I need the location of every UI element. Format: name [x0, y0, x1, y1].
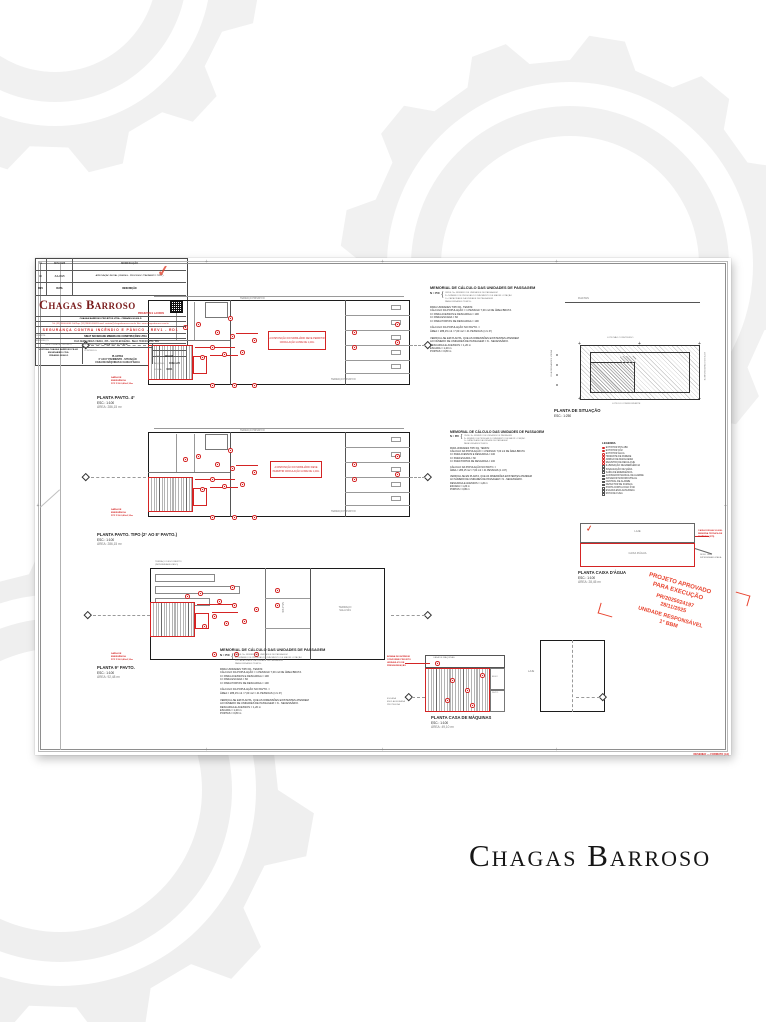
fire-symbol-icon	[470, 703, 475, 708]
fire-symbol-icon	[230, 334, 235, 339]
memorial-formula: N = P/C	[430, 292, 440, 296]
leader-line	[236, 333, 258, 334]
legend: LEGENDA EXTINTOR PQS ABCEXTINTOR CO2EXTI…	[602, 442, 664, 496]
wall-line	[345, 447, 410, 448]
legend-label: DETECTOR DE FUMAÇA	[606, 484, 633, 486]
wall-line	[345, 360, 410, 361]
terrace-label: TERRAÇO PRIVATIVO	[331, 510, 356, 513]
brand-wordmark: Chagas Barroso	[469, 838, 711, 874]
fire-symbol-icon	[232, 383, 237, 388]
content-cell: CLASSIFICAÇÃO: ÁREA: (2+4, 5+1 e A+B) CO…	[83, 344, 153, 364]
section-leader-line	[576, 697, 600, 698]
section-leader-line	[93, 615, 150, 616]
fire-symbol-icon	[196, 322, 201, 327]
rev-header: REV	[35, 283, 47, 296]
fixture	[391, 496, 401, 501]
frame-note: DESENHO — FORMATO (A1)	[591, 753, 729, 756]
wall-line	[345, 373, 410, 374]
section-marker-icon	[424, 611, 432, 619]
content-value: PLANTAS 4° AO 8° PAVIMENTO - SITUAÇÃO CA…	[83, 355, 152, 364]
terrace-label: TERRAÇO PRIVATIVO	[240, 429, 265, 432]
fire-symbol-icon	[183, 457, 188, 462]
rt-label: RESPONSÁVEL TÉCNICO	[35, 344, 82, 348]
wall-line	[148, 472, 230, 473]
section-leader-line	[410, 345, 425, 346]
rev-no: 00	[35, 271, 47, 284]
tank-annotation-red: CAIXA D'ÁGUA 10.000L RESERVA TÉCNICA DE …	[698, 530, 738, 539]
lot-label: LOTE DO CONFRONTANTE	[612, 403, 640, 406]
rev-header: DESCRIÇÃO	[73, 283, 186, 296]
legend-label: SAÍDA DE EMERGÊNCIA	[606, 472, 633, 474]
check-mark-icon: ✓	[156, 261, 171, 281]
leader-line	[195, 347, 235, 348]
parapet-line	[154, 428, 404, 429]
sheet-value: 01/01	[166, 368, 172, 371]
wall-line	[230, 300, 231, 385]
logo-tagline: PROJETOS E LAUDOS	[138, 312, 164, 315]
fire-symbol-icon	[198, 591, 203, 596]
memorial-body: PARA UNIDADES TIPO D1, TEMOS: CÁLCULO DA…	[430, 306, 542, 354]
street-label: RUA PAIS	[578, 297, 589, 300]
street-label-left: RUA FERNANDES VIEIRA	[551, 350, 554, 376]
fire-symbol-icon	[352, 462, 357, 467]
fire-symbol-icon	[352, 330, 357, 335]
legend-label: ROTA DE FUGA	[606, 493, 623, 495]
fold-mark	[40, 489, 60, 507]
building-dark-step	[620, 356, 636, 363]
memorial-where: ONDE: N= NÚMERO DE UNIDADES DE PASSAGEM …	[445, 292, 512, 303]
content-label: CONTEÚDO:	[84, 350, 97, 353]
emergency-stair	[148, 477, 193, 512]
terrace-label: TERRAÇO PRIVATIVO	[240, 297, 265, 300]
fire-symbol-icon	[395, 454, 400, 459]
wall-line	[230, 432, 231, 517]
fire-symbol-icon	[252, 338, 257, 343]
legend-symbol-icon	[602, 493, 605, 496]
memorial-where: ONDE: N= NÚMERO DE UNIDADES DE PASSAGEM …	[464, 435, 525, 445]
fire-symbol-icon	[228, 316, 233, 321]
fire-symbol-icon	[275, 603, 280, 608]
plan4-area: ÁREA: 286,15 m²	[97, 405, 122, 409]
street-line	[565, 302, 700, 303]
fire-symbol-icon	[210, 477, 215, 482]
fire-symbol-icon	[395, 472, 400, 477]
memorial-2: MEMORIAL DE CÁLCULO DAS UNIDADES DE PASS…	[450, 430, 545, 491]
fixture	[391, 350, 401, 355]
laje-dashed-line	[572, 640, 573, 712]
memorial-title: MEMORIAL DE CÁLCULO DAS UNIDADES DE PASS…	[220, 648, 338, 653]
fire-symbol-icon	[230, 466, 235, 471]
leader-line	[195, 479, 235, 480]
memorial-where: ONDE: N= NÚMERO DE UNIDADES DE PASSAGEM …	[235, 654, 302, 665]
sheet-label: FOLHA:	[154, 369, 162, 371]
lot-label: LOTE NÃO CONSTRUÍDO	[607, 337, 633, 340]
memorial-title: MEMORIAL DE CÁLCULO DAS UNIDADES DE PASS…	[430, 286, 542, 291]
mobiliario-notice-box: A DISPOSIÇÃO DO MOBILIÁRIO DEVE PERMITIR…	[268, 331, 326, 350]
fire-symbol-icon	[480, 673, 485, 678]
laje-label: LAJE	[615, 530, 660, 533]
fire-symbol-icon	[215, 330, 220, 335]
logo-wordmark: Chagas Barroso	[39, 298, 136, 313]
terrace-label: TERRAÇO PRIVATIVO	[331, 378, 356, 381]
mobiliario-notice-box: A DISPOSIÇÃO DO MOBILIÁRIO DEVE PERMITIR…	[270, 461, 322, 478]
memorial-formula: N = P/C	[220, 654, 230, 658]
fire-symbol-icon	[252, 515, 257, 520]
meta-cell: DATA: NOV/25 ARQUIVO: 1009-1/25 FOLHA: 0…	[153, 344, 186, 364]
fire-symbol-icon	[212, 652, 217, 657]
emergency-stair	[150, 602, 195, 637]
planter	[155, 574, 215, 582]
fire-symbol-icon	[252, 383, 257, 388]
fire-symbol-icon	[200, 355, 205, 360]
survey-point	[556, 354, 558, 356]
fire-symbol-icon	[222, 484, 227, 489]
section-marker-icon	[82, 473, 90, 481]
fire-symbol-icon	[240, 482, 245, 487]
exit-note: SAÍDA DE EMERGÊNCIA PCF P-90 0,80x2,10m	[111, 509, 151, 518]
wall-line	[265, 568, 266, 660]
laje-label: LAJE	[528, 670, 534, 673]
maq-area: ÁREA: 49,10 m²	[431, 725, 454, 729]
fire-symbol-icon	[202, 624, 207, 629]
fire-symbol-icon	[185, 594, 190, 599]
wall-line	[345, 505, 410, 506]
fire-symbol-icon	[395, 340, 400, 345]
brace: {	[441, 292, 443, 298]
wall-line	[345, 315, 410, 316]
room-label: TERRAÇO SALA 901	[320, 606, 370, 613]
memorial-body: PARA UNIDADES TIPO D1, TEMOS: CÁLCULO DA…	[450, 447, 545, 491]
page: { "brand": { "wordmark": "Chagas Barroso…	[0, 0, 766, 1022]
legend-symbol-icon	[602, 447, 605, 450]
memorial-3: MEMORIAL DE CÁLCULO DAS UNIDADES DE PASS…	[220, 648, 338, 716]
fire-symbol-icon	[212, 614, 217, 619]
frame-tick: +	[724, 504, 727, 509]
exit-note: SAÍDA DE EMERGÊNCIA PCF P-90 0,80x2,10m	[111, 377, 151, 386]
fire-symbol-icon	[222, 352, 227, 357]
fire-symbol-icon	[352, 345, 357, 350]
section-marker-icon	[84, 611, 92, 619]
fixture	[391, 364, 401, 369]
wall-line	[310, 568, 311, 660]
frame-tick: +	[205, 260, 208, 265]
section-leader-line	[410, 477, 425, 478]
elevator-shaft	[205, 434, 228, 450]
frame-tick: +	[205, 748, 208, 753]
legend-row: ROTA DE FUGA	[602, 493, 664, 496]
legend-label: CENTRAL DE ALARME	[606, 481, 630, 483]
rev-no: 01	[35, 258, 47, 271]
room-label: CASA DE MÁQUINAS	[433, 657, 493, 660]
fire-symbol-icon	[232, 515, 237, 520]
brace: {	[231, 654, 233, 660]
frame-tick: +	[381, 748, 384, 753]
section-marker-icon	[424, 473, 432, 481]
fire-symbol-icon	[215, 462, 220, 467]
legend-label: ACIONADOR MANUAL DE ALARME	[606, 475, 644, 477]
fire-symbol-icon	[230, 585, 235, 590]
leader-line	[197, 604, 235, 605]
legend-label: ILUMINAÇÃO DE EMERGÊNCIA	[606, 465, 640, 467]
pump-annotation-red: BOMBA DE INCÊNDIO CONFORME PROJETO HIDRÁ…	[387, 656, 427, 667]
rev-header: DATA	[47, 283, 73, 296]
fire-symbol-icon	[252, 470, 257, 475]
caixa-area: ÁREA: 28,45 m²	[578, 580, 601, 584]
fire-symbol-icon	[240, 350, 245, 355]
leader-line	[236, 465, 258, 466]
situacao-scale: ESC.: 1:250	[554, 414, 571, 418]
fire-symbol-icon	[196, 454, 201, 459]
fire-symbol-icon	[228, 448, 233, 453]
rev-date: NOV/2025	[47, 258, 73, 271]
fixture	[391, 437, 401, 442]
logo-row: Chagas Barroso PROJETOS E LAUDOS	[35, 296, 186, 317]
drawing-sheet: +++++++++++++ PLANTA PAVTO. 4° ESC.: 1:1…	[35, 258, 731, 755]
fixture	[391, 482, 401, 487]
fire-symbol-icon	[275, 588, 280, 593]
brace: {	[461, 435, 463, 440]
rt-cell: RESPONSÁVEL TÉCNICO LUIZ DAS CHAGAS BARR…	[35, 344, 83, 364]
check-mark-icon: ✓	[585, 524, 593, 534]
legend-label: SINALIZAÇÃO DE SAÍDA	[606, 469, 633, 471]
legend-label: EXTINTOR PQS ABC	[606, 447, 628, 449]
plan9-area: ÁREA: 92,48 m²	[97, 675, 120, 679]
parapet-line	[154, 296, 404, 297]
wall-line	[194, 302, 195, 340]
fire-symbol-icon	[242, 619, 247, 624]
project-title: SEGURANÇA CONTRA INCÊNDIO E PÂNICO - REV…	[35, 327, 186, 334]
class-value: ÁREA: (2+4, 5+1 e A+B)	[104, 344, 128, 347]
survey-point	[556, 374, 558, 376]
legend-label: EXTINTOR CO2	[606, 450, 623, 452]
dimension-tick: +	[698, 397, 701, 402]
dimension-tick: +	[578, 397, 581, 402]
memorial-formula: N = P/C	[450, 435, 459, 438]
rev-date: JUL/2025	[47, 271, 73, 284]
memorial-title: MEMORIAL DE CÁLCULO DAS UNIDADES DE PASS…	[450, 430, 545, 434]
wall-line	[194, 434, 195, 472]
dimension-tick: +	[638, 342, 641, 347]
tank-annotation: NÍVEL LAJE IMPERMEABILIZADA	[700, 554, 736, 560]
title-block: 01 NOV/2025 MODIFICAÇÃO 00 JUL/2025 APRO…	[35, 258, 188, 366]
legend-label: AVISADOR SONORO/VISUAL	[606, 478, 637, 480]
section-leader-line	[91, 477, 146, 478]
wall-line	[265, 628, 310, 629]
terrace-note: TERRAÇO DESCOBERTO (IMPERMEABILIZADO)	[155, 561, 215, 567]
dimension-tick: +	[578, 342, 581, 347]
qr-code	[170, 300, 183, 313]
lot-label-right: LOTE DO CONFRONTANTE	[702, 352, 705, 380]
fire-symbol-icon	[465, 688, 470, 693]
rt-value: LUIZ DAS CHAGAS BARROSO FILHO ENGENHEIRO…	[35, 349, 82, 358]
elevator-shaft	[205, 302, 228, 318]
leader-line	[212, 612, 238, 613]
dimension-tick: +	[698, 342, 701, 347]
survey-point	[556, 384, 558, 386]
wall-line	[265, 598, 310, 599]
frame-tick: +	[555, 260, 558, 265]
fixture	[391, 305, 401, 310]
fire-symbol-icon	[254, 607, 259, 612]
class-label: CLASSIFICAÇÃO:	[84, 344, 102, 347]
frame-tick: +	[555, 748, 558, 753]
exit-note: SAÍDA DE EMERGÊNCIA PCF P-90 0,80x2,10m	[111, 653, 151, 662]
fire-symbol-icon	[210, 345, 215, 350]
legend-items: EXTINTOR PQS ABCEXTINTOR CO2EXTINTOR ÁGU…	[602, 447, 664, 496]
room-label: SALA 901	[281, 602, 284, 613]
duto-label: DUTO	[492, 692, 498, 695]
wall-line	[176, 434, 177, 472]
tank-label: CAIXA D'ÁGUA	[610, 552, 665, 555]
stair-annotation: ESCADA ENCLAUSURADA PROTEGIDA	[387, 698, 427, 707]
survey-point	[556, 364, 558, 366]
fire-symbol-icon	[450, 678, 455, 683]
fire-symbol-icon	[435, 661, 440, 666]
section-leader-line	[391, 615, 425, 616]
fire-symbol-icon	[224, 621, 229, 626]
frame-tick: +	[381, 260, 384, 265]
memorial-1: MEMORIAL DE CÁLCULO DAS UNIDADES DE PASS…	[430, 286, 542, 354]
elevator-shaft	[490, 668, 505, 690]
building-dark-outline	[590, 362, 635, 393]
fire-symbol-icon	[395, 322, 400, 327]
legend-title: LEGENDA	[602, 442, 664, 446]
bottom-grid: RESPONSÁVEL TÉCNICO LUIZ DAS CHAGAS BARR…	[35, 344, 186, 364]
wall-line	[345, 492, 410, 493]
fire-symbol-icon	[445, 698, 450, 703]
memorial-body: PARA UNIDADES TIPO D1, TEMOS: CÁLCULO DA…	[220, 668, 338, 716]
fire-symbol-icon	[200, 487, 205, 492]
fire-symbol-icon	[210, 383, 215, 388]
legend-label: EXTINTOR ÁGUA	[606, 453, 625, 455]
fire-symbol-icon	[352, 477, 357, 482]
fire-symbol-icon	[217, 599, 222, 604]
elev-label: ELEV.	[492, 676, 498, 679]
fire-symbol-icon	[232, 603, 237, 608]
plan-tipo-area: ÁREA: 286,15 m²	[97, 542, 122, 546]
fire-symbol-icon	[210, 515, 215, 520]
